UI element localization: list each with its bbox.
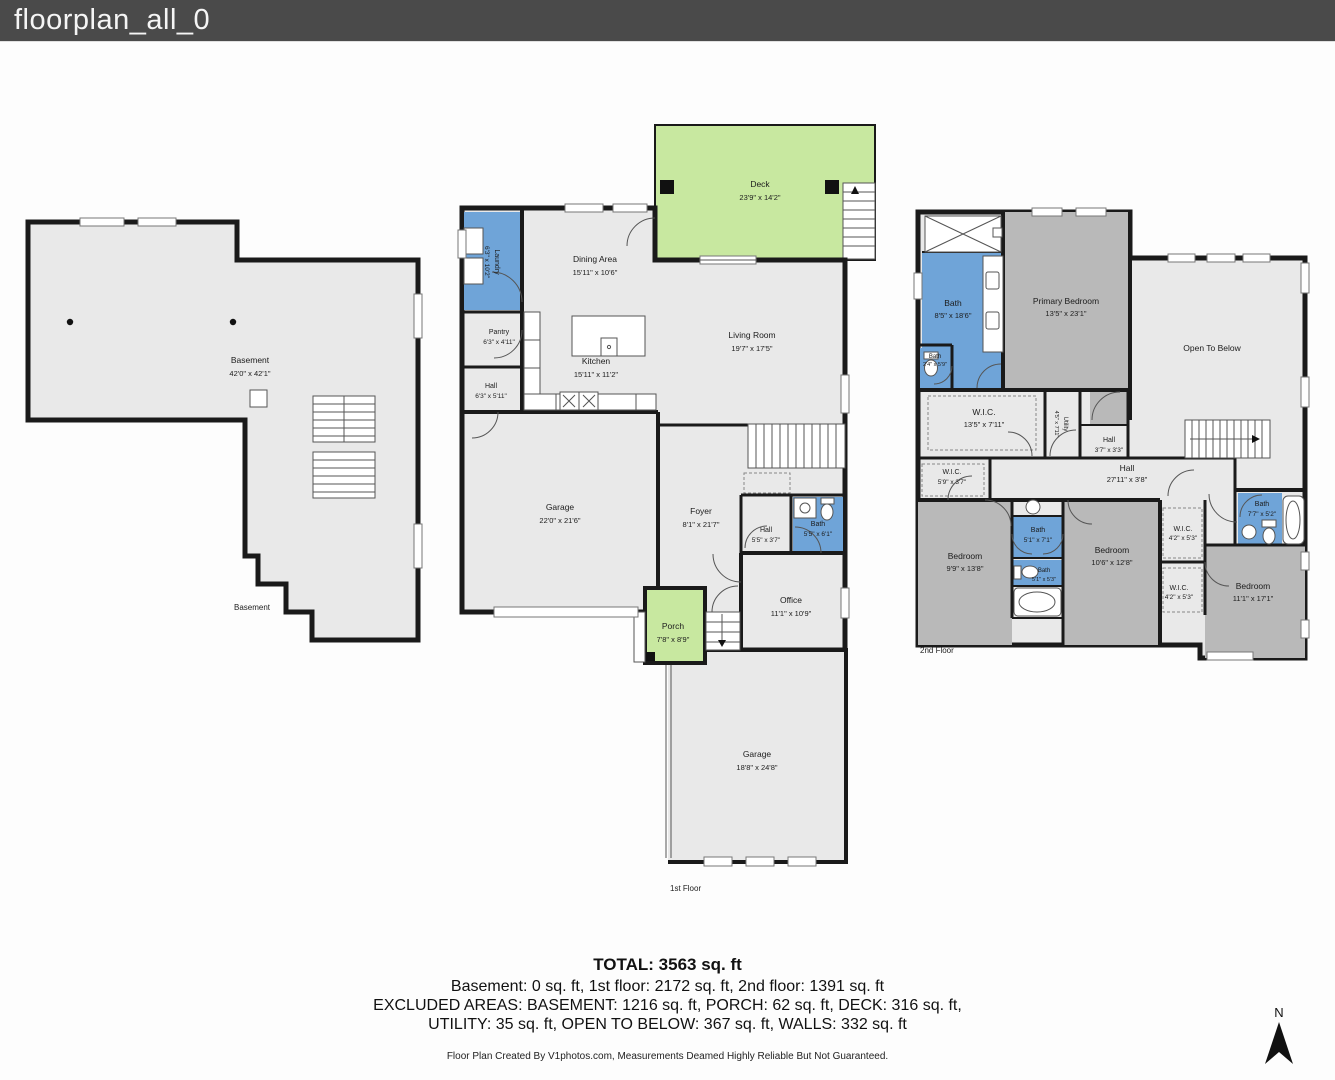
bedroom-mid-label: Bedroom [1095,545,1130,555]
floor-areas-line: Basement: 0 sq. ft, 1st floor: 2172 sq. … [0,978,1335,996]
living-dims: 19'7" x 17'5" [731,344,772,353]
first-floor-plan: Deck 23'9" x 14'2" Laundry 6'3" x 10'2" … [458,125,875,893]
second-floor-caption: 2nd Floor [920,646,954,655]
hall-long-dims: 27'11" x 3'8" [1107,475,1148,484]
credit-line: Floor Plan Created By V1photos.com, Meas… [0,1051,1335,1062]
stairwell [1185,420,1270,458]
hall-long-label: Hall [1120,463,1135,473]
porch-dims: 7'8" x 8'9" [657,635,690,644]
bath-right-dims: 7'7" x 5'2" [1248,511,1277,518]
wic-bottom-label: W.I.C. [1169,585,1188,592]
bath-right-label: Bath [1255,501,1270,508]
primary-bath-dims: 8'5" x 18'6" [935,311,972,320]
dining-label: Dining Area [573,254,617,264]
utility-dims: 4'5" x 7'11" [1053,411,1059,438]
laundry-dims: 6'3" x 10'2" [483,246,490,279]
utility-label: Utility [1062,417,1068,432]
garage-lower-label: Garage [743,749,772,759]
hall-mid-label: Hall [760,527,773,534]
first-bath-fixtures [794,498,834,520]
bedroom-mid-dims: 10'6" x 12'8" [1091,558,1132,567]
garage-lower-dims: 18'8" x 24'8" [736,763,777,772]
wic-bottom-dims: 4'2" x 5'3" [1165,594,1194,601]
first-bath-dims: 5'5" x 6'1" [804,531,833,538]
primary-bedroom-label: Primary Bedroom [1033,296,1099,306]
total-area: TOTAL: 3563 sq. ft [0,955,1335,975]
floorplan-page: floorplan_all_0 Basement [0,0,1335,1080]
laundry-label: Laundry [493,249,500,275]
kitchen-label: Kitchen [582,356,611,366]
garage-main-dims: 22'0" x 21'6" [539,516,580,525]
garage-main-label: Garage [546,502,575,512]
basement-plan: Basement 42'0" x 42'1" Basement [28,218,422,640]
foyer-label: Foyer [690,506,712,516]
pantry-dims: 6'3" x 4'11" [483,339,515,346]
kitchen-dims: 15'11" x 11'2" [574,370,619,379]
first-floor-caption: 1st Floor [670,884,701,893]
porch-label: Porch [662,621,684,631]
hall-small-label: Hall [1103,437,1116,444]
pantry-label: Pantry [489,329,510,336]
north-arrow-icon [1259,1020,1299,1068]
primary-shower [925,216,1002,252]
office-dims: 11'1" x 10'9" [771,609,812,618]
small-bath-label: Bath [929,354,941,360]
open-to-below-label: Open To Below [1183,343,1241,353]
bath-mid-bottom-dims: 5'1" x 5'3" [1032,577,1056,583]
second-floor-plan: Bath 8'5" x 18'6" Bath 2'4" x 5'9" Prima… [914,208,1309,660]
basement-room-dims: 42'0" x 42'1" [229,369,270,378]
wic-small-dims: 5'9" x 3'7" [938,479,967,486]
excluded-areas-line-1: EXCLUDED AREAS: BASEMENT: 1216 sq. ft, P… [0,997,1335,1015]
compass: N [1254,1005,1304,1075]
dining-dims: 15'11" x 10'6" [573,268,618,277]
foyer-dims: 8'1" x 21'7" [683,520,720,529]
hall-small-dims: 3'7" x 3'3" [1095,447,1124,454]
bedroom-left-label: Bedroom [948,551,983,561]
wic-top-label: W.I.C. [1173,526,1192,533]
wic-primary-dims: 13'5" x 7'11" [964,420,1005,429]
wic-primary-label: W.I.C. [972,407,995,417]
first-bath-label: Bath [811,521,826,528]
hall-mid-dims: 5'5" x 3'7" [752,537,781,544]
primary-bedroom-dims: 13'5" x 23'1" [1045,309,1086,318]
hall-top-dims: 6'3" x 5'11" [475,393,507,400]
deck-label: Deck [750,179,770,189]
compass-north-label: N [1254,1005,1304,1020]
deck-dims: 23'9" x 14'2" [739,193,780,202]
floorplan-drawing: Basement 42'0" x 42'1" Basement [0,0,1335,1080]
basement-room-label: Basement [231,355,270,365]
small-bath-dims: 2'4" x 5'9" [923,362,947,368]
bedroom-right-dims: 11'1" x 17'1" [1233,594,1274,603]
bath-mid-top-label: Bath [1031,527,1046,534]
hall-top-label: Hall [485,383,498,390]
basement-caption: Basement [234,603,271,612]
wic-small-label: W.I.C. [942,469,961,476]
living-label: Living Room [728,330,775,340]
excluded-areas-line-2: UTILITY: 35 sq. ft, OPEN TO BELOW: 367 s… [0,1016,1335,1034]
bath-mid-top-dims: 5'1" x 7'1" [1024,537,1053,544]
bedroom-left-dims: 9'9" x 13'8" [947,564,984,573]
office-label: Office [780,595,802,605]
bath-mid-bottom-label: Bath [1038,568,1050,574]
primary-bath-label: Bath [944,298,962,308]
wic-top-dims: 4'2" x 5'3" [1169,535,1198,542]
bedroom-right-label: Bedroom [1236,581,1271,591]
area-summary: TOTAL: 3563 sq. ft Basement: 0 sq. ft, 1… [0,955,1335,1062]
